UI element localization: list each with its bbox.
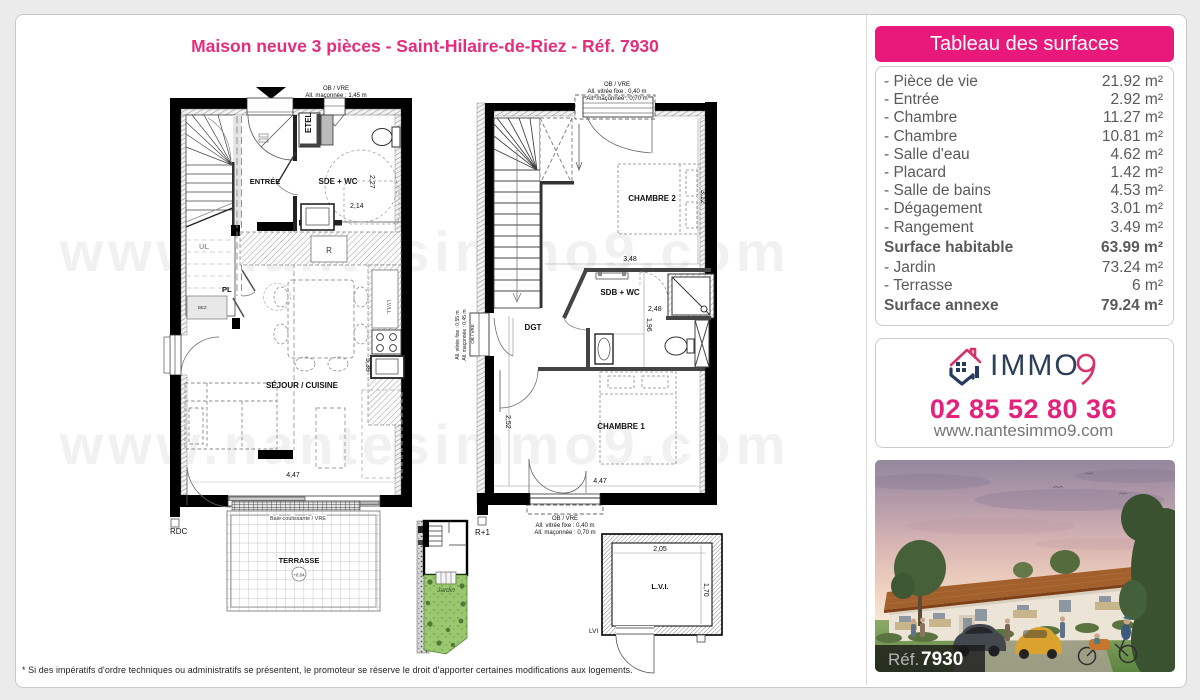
svg-text:L.V.I.: L.V.I. bbox=[651, 582, 668, 591]
svg-text:RDC: RDC bbox=[170, 527, 188, 536]
svg-text:All. vitrée fixe : 0,40 m: All. vitrée fixe : 0,40 m bbox=[587, 89, 646, 95]
svg-text:ENTRÉE: ENTRÉE bbox=[250, 177, 280, 186]
svg-text:CHAMBRE 1: CHAMBRE 1 bbox=[597, 422, 645, 431]
svg-text:+0,04: +0,04 bbox=[293, 573, 305, 578]
svg-text:5,39: 5,39 bbox=[364, 358, 371, 372]
svg-text:OB / VRE: OB / VRE bbox=[552, 516, 578, 522]
svg-text:OB / VRE: OB / VRE bbox=[604, 82, 630, 88]
svg-text:Baie coulissante / VRE: Baie coulissante / VRE bbox=[270, 516, 326, 522]
svg-text:DGT: DGT bbox=[525, 323, 542, 332]
svg-text:SDE + WC: SDE + WC bbox=[319, 177, 358, 186]
svg-text:All. maçonnée : 0,45 m: All. maçonnée : 0,45 m bbox=[462, 309, 468, 360]
svg-text:4,47: 4,47 bbox=[593, 478, 607, 485]
svg-text:2,48: 2,48 bbox=[648, 306, 662, 313]
svg-text:UL: UL bbox=[199, 242, 209, 251]
svg-text:TERRASSE: TERRASSE bbox=[279, 556, 320, 565]
svg-text:2,14: 2,14 bbox=[350, 203, 364, 210]
svg-text:OB / VRE: OB / VRE bbox=[323, 86, 349, 92]
svg-text:LVI: LVI bbox=[589, 628, 598, 635]
svg-text:4,47: 4,47 bbox=[286, 472, 300, 479]
svg-text:1,70: 1,70 bbox=[702, 583, 709, 597]
svg-text:2,05: 2,05 bbox=[653, 546, 667, 553]
svg-text:ETEL: ETEL bbox=[304, 112, 313, 133]
svg-text:CHAMBRE 2: CHAMBRE 2 bbox=[628, 194, 676, 203]
svg-text:R+1: R+1 bbox=[475, 528, 490, 537]
svg-text:All. maçonnée : 0,70 m: All. maçonnée : 0,70 m bbox=[534, 530, 595, 536]
svg-text:3,48: 3,48 bbox=[623, 256, 637, 263]
svg-text:BEZ: BEZ bbox=[198, 305, 207, 310]
svg-text:All. vitrée fixe : 0,40 m: All. vitrée fixe : 0,40 m bbox=[535, 523, 594, 529]
svg-text:R: R bbox=[326, 246, 332, 255]
svg-text:2,52: 2,52 bbox=[504, 415, 511, 429]
svg-text:PL: PL bbox=[222, 285, 232, 294]
svg-text:OB / VRE: OB / VRE bbox=[470, 324, 475, 344]
svg-text:1,96: 1,96 bbox=[645, 318, 652, 332]
svg-text:SDB + WC: SDB + WC bbox=[600, 288, 640, 297]
svg-text:LV/LL: LV/LL bbox=[385, 300, 391, 314]
svg-text:All. maçonnée : 0,70 m: All. maçonnée : 0,70 m bbox=[586, 96, 647, 102]
svg-text:All. vitrée fixe : 0,55 m: All. vitrée fixe : 0,55 m bbox=[455, 310, 461, 359]
svg-text:SÉJOUR / CUISINE: SÉJOUR / CUISINE bbox=[266, 381, 339, 390]
svg-text:Jardin: Jardin bbox=[436, 587, 455, 594]
svg-text:2,27: 2,27 bbox=[368, 175, 375, 189]
